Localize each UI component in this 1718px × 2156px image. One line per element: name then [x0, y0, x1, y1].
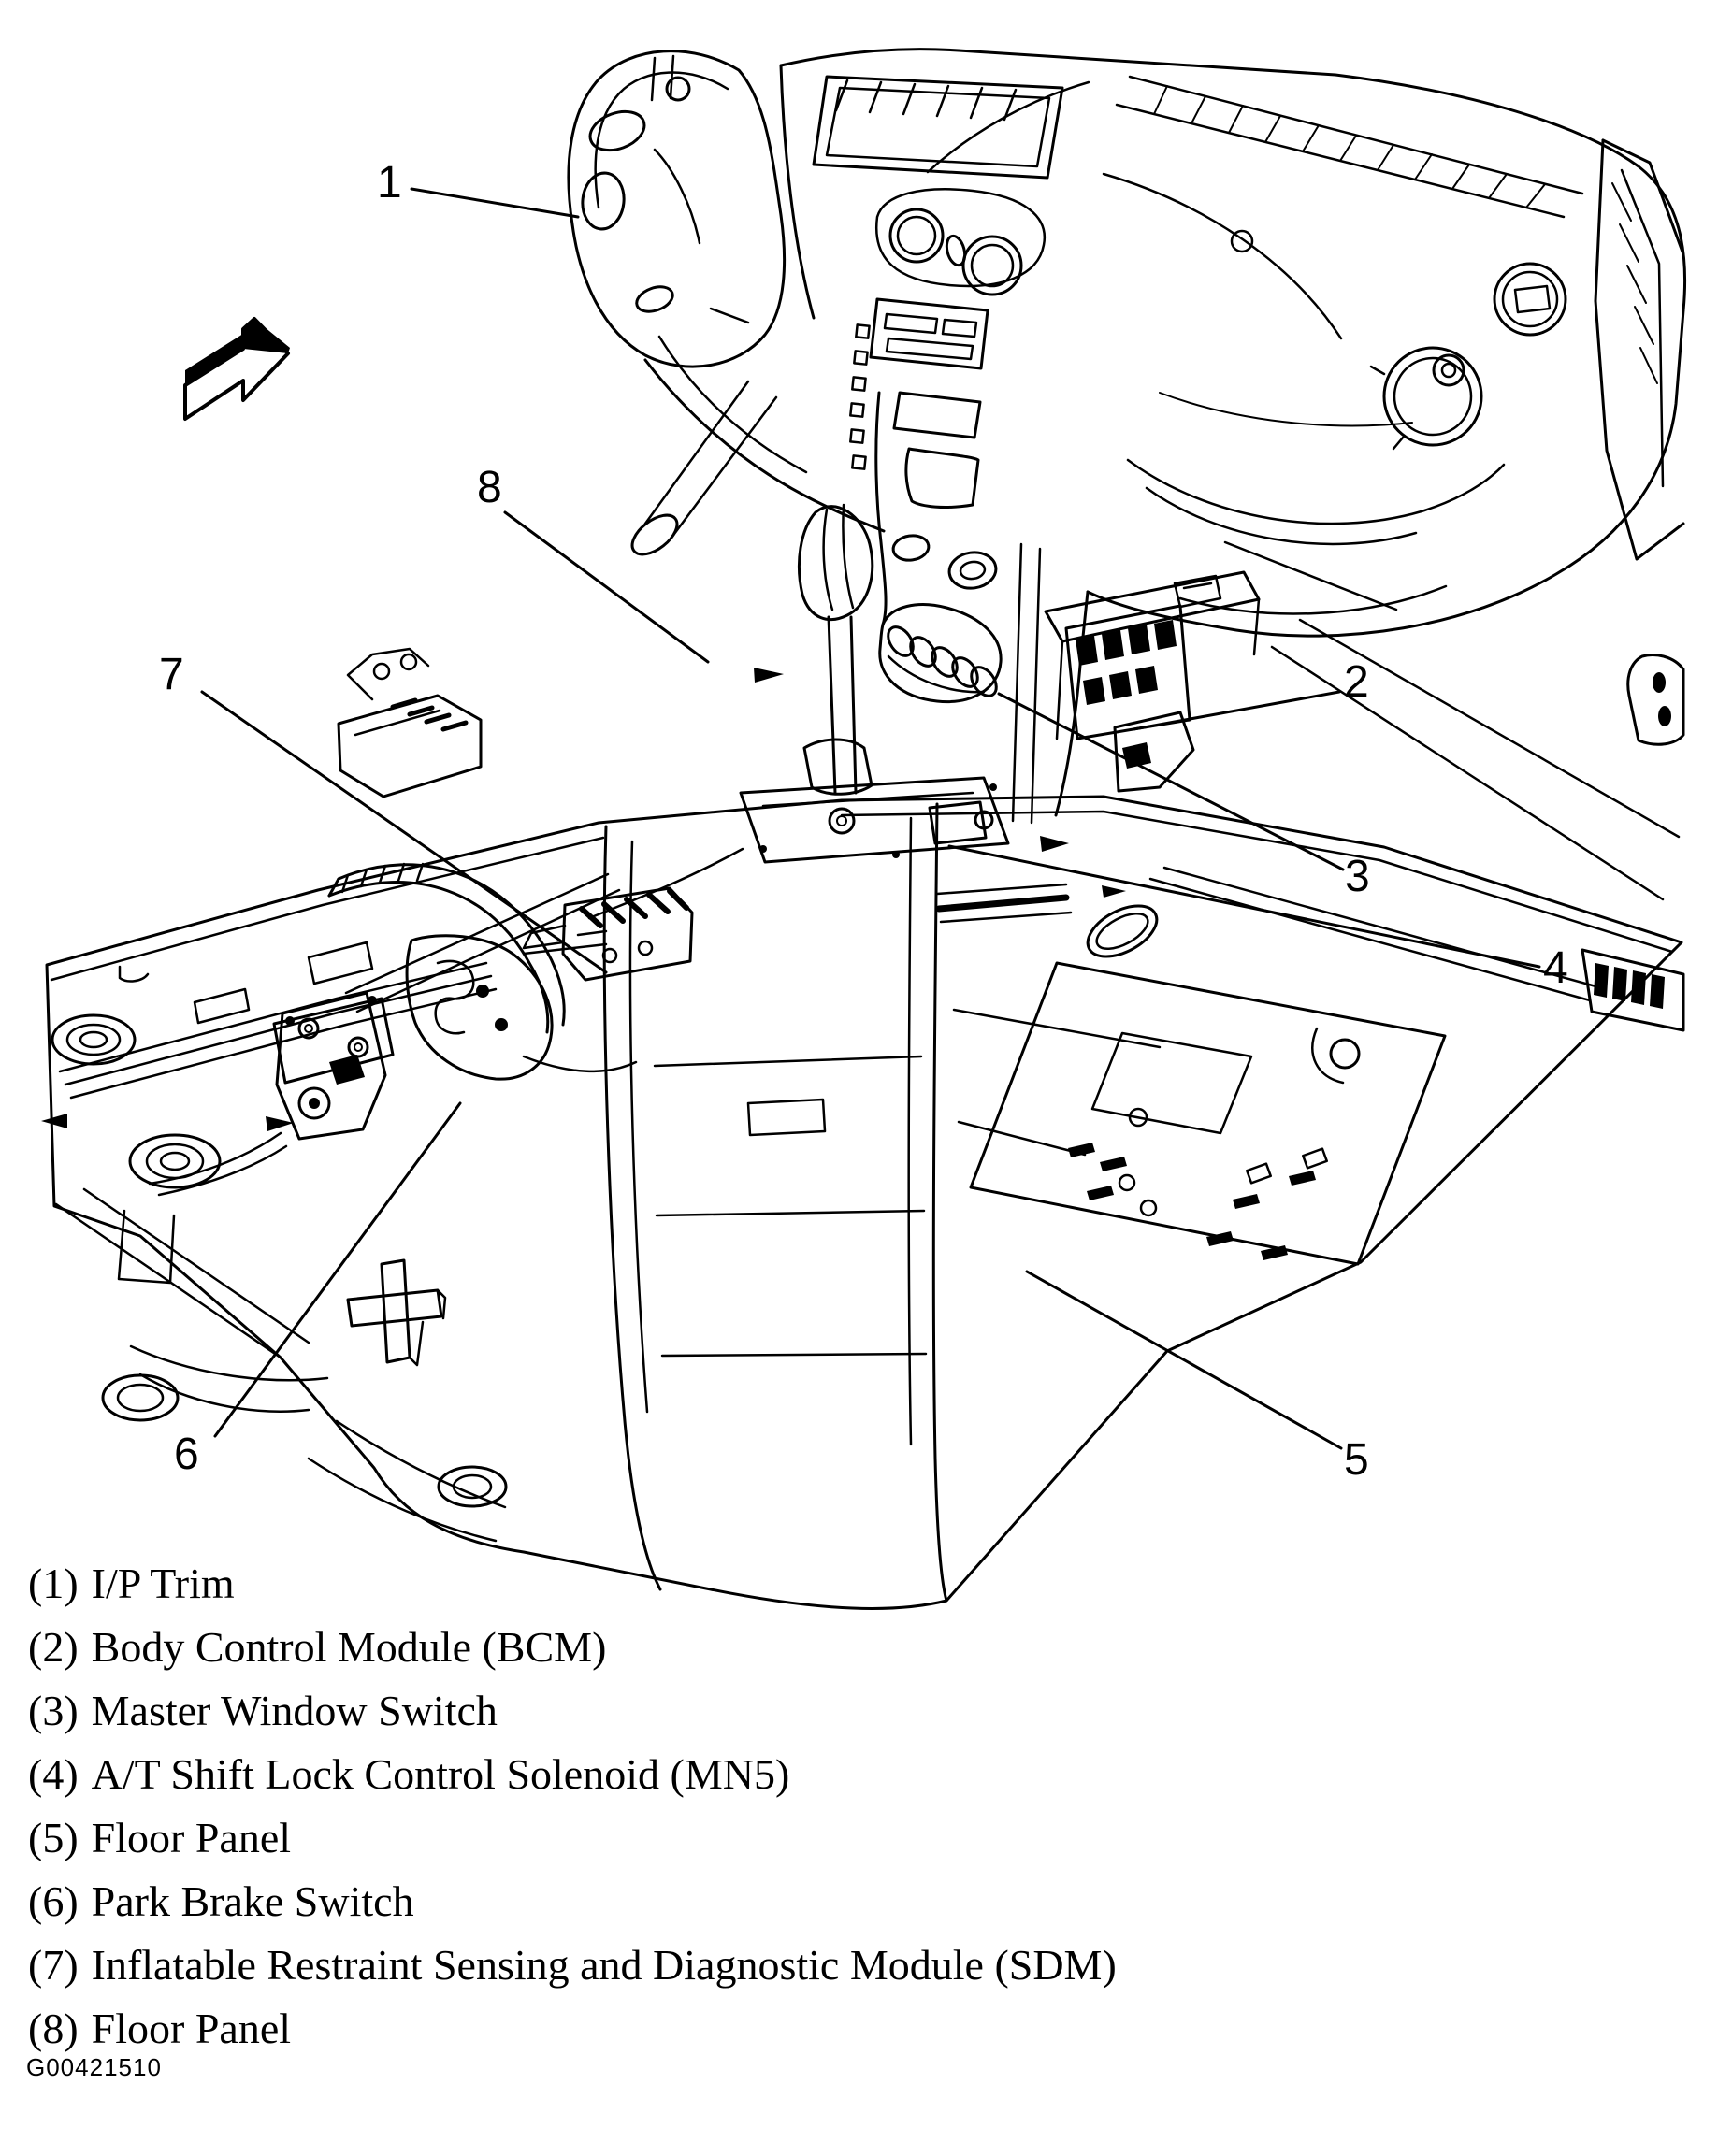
legend-item-number: (3): [28, 1687, 79, 1734]
service-manual-figure: 1 2 3 4 5 6 7 8 (1)I/P Trim (2)Body Cont…: [0, 0, 1718, 2156]
shift-lever-drawing: [799, 505, 872, 793]
floor-module-drawing: [339, 649, 481, 797]
legend-item-8: (8)Floor Panel: [28, 1997, 1117, 2061]
bcm-drawing: [1013, 544, 1259, 823]
defroster-hatch: [836, 80, 1016, 120]
direction-arrow-icon: [185, 319, 290, 419]
legend-item-label: I/P Trim: [92, 1560, 235, 1607]
legend-item-label: Body Control Module (BCM): [92, 1623, 607, 1671]
cluster-housing-drawing: [569, 51, 785, 367]
legend-item-1: (1)I/P Trim: [28, 1552, 1117, 1616]
leader-line-1: [411, 189, 578, 217]
legend-item-number: (2): [28, 1623, 79, 1671]
legend-item-6: (6)Park Brake Switch: [28, 1870, 1117, 1933]
floor-pan-drawing: [41, 649, 1683, 1608]
legend-item-label: Park Brake Switch: [92, 1877, 414, 1925]
callout-2: 2: [1344, 660, 1369, 705]
stack-buttons-drawing: [850, 324, 869, 468]
legend-item-number: (8): [28, 2005, 79, 2052]
sdm-hatch: [582, 891, 686, 926]
legend: (1)I/P Trim (2)Body Control Module (BCM)…: [28, 1552, 1117, 2061]
window-switch-drawing: [880, 605, 1002, 702]
leader-line-4: [949, 846, 1539, 967]
callout-1: 1: [377, 161, 402, 206]
callout-7: 7: [159, 653, 184, 697]
legend-item-number: (4): [28, 1750, 79, 1798]
leader-line-5: [1027, 1272, 1341, 1448]
legend-item-3: (3)Master Window Switch: [28, 1679, 1117, 1743]
legend-item-5: (5)Floor Panel: [28, 1806, 1117, 1870]
dashboard-drawing: [626, 50, 1685, 899]
legend-item-label: Master Window Switch: [92, 1687, 498, 1734]
callout-4: 4: [1543, 946, 1568, 991]
callout-5: 5: [1344, 1438, 1369, 1483]
legend-item-label: Inflatable Restraint Sensing and Diagnos…: [92, 1941, 1117, 1989]
callout-6: 6: [174, 1432, 199, 1477]
legend-item-4: (4)A/T Shift Lock Control Solenoid (MN5): [28, 1743, 1117, 1806]
pillar-hatch: [1612, 183, 1657, 383]
legend-item-number: (1): [28, 1560, 79, 1607]
callout-8: 8: [477, 466, 502, 510]
legend-item-label: Floor Panel: [92, 2005, 291, 2052]
legend-item-label: Floor Panel: [92, 1814, 291, 1861]
panel-slots: [1068, 1143, 1316, 1260]
leader-line-8: [505, 512, 708, 662]
leader-line-2: [1133, 692, 1339, 729]
legend-item-number: (7): [28, 1941, 79, 1989]
legend-item-2: (2)Body Control Module (BCM): [28, 1616, 1117, 1679]
bcm-connector-teeth: [1076, 620, 1177, 705]
leader-line-7: [202, 692, 606, 972]
legend-item-label: A/T Shift Lock Control Solenoid (MN5): [92, 1750, 790, 1798]
callout-3: 3: [1345, 855, 1370, 899]
figure-code: G00421510: [26, 2053, 162, 2082]
leader-line-6: [215, 1103, 460, 1436]
legend-item-7: (7)Inflatable Restraint Sensing and Diag…: [28, 1933, 1117, 1997]
legend-item-number: (6): [28, 1877, 79, 1925]
legend-item-number: (5): [28, 1814, 79, 1861]
